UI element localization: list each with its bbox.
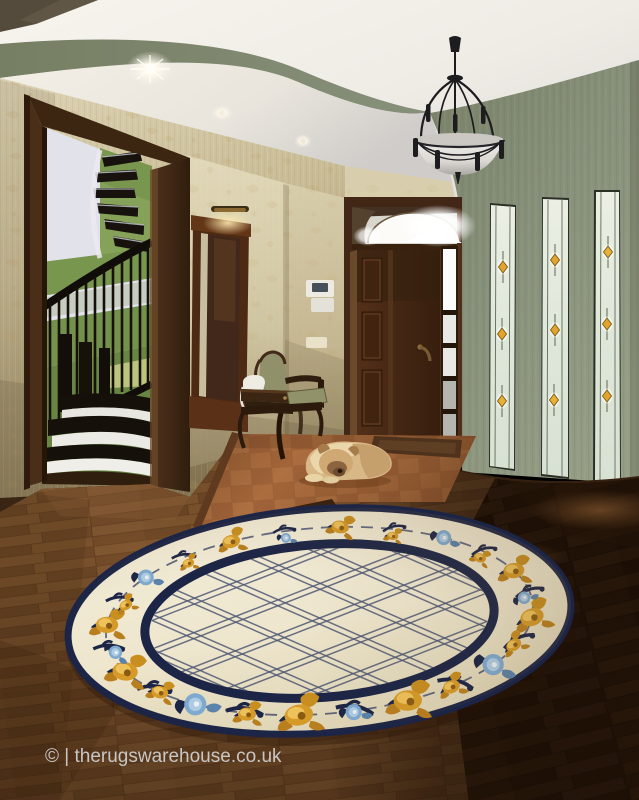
svg-text:© | therugswarehouse.co.uk: © | therugswarehouse.co.uk [45, 746, 282, 767]
